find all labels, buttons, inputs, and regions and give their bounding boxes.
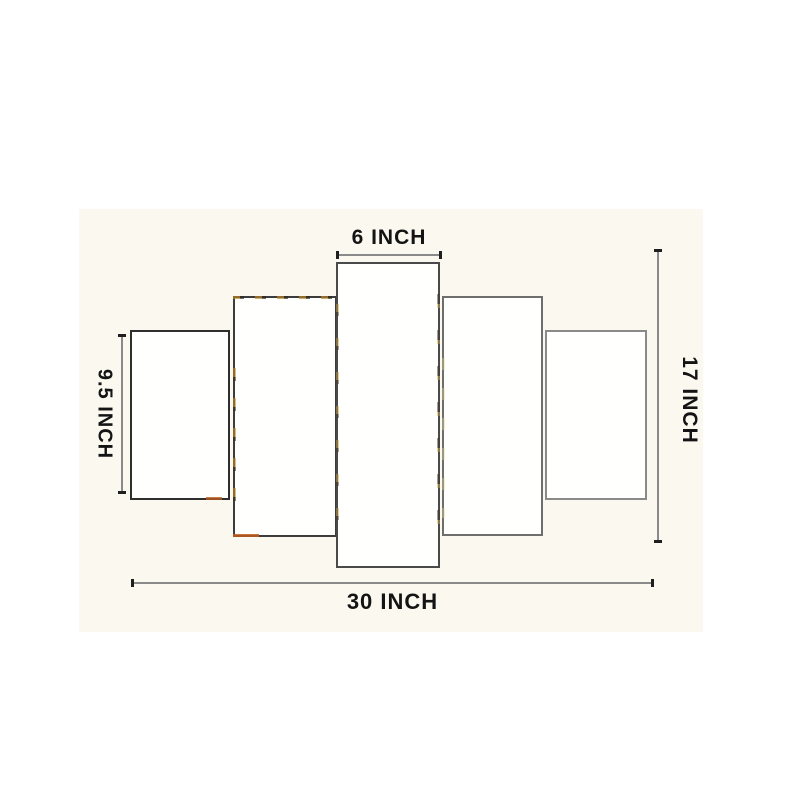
canvas-edge-speckle: [442, 358, 445, 518]
canvas-edge-speckle: [437, 294, 440, 534]
dimension-line-bottom-width: [132, 582, 653, 584]
canvas-edge-speckle: [233, 534, 259, 537]
canvas-edge-speckle: [233, 296, 337, 299]
dimension-line-left-height: [121, 335, 123, 493]
canvas-edge-speckle: [206, 497, 222, 500]
dimension-label-total-width: 30 INCH: [132, 589, 653, 615]
canvas-panel-2-left-inner: [233, 296, 337, 537]
canvas-panel-3-center: [336, 262, 440, 568]
dimension-line-top-width: [337, 254, 441, 256]
dimension-label-total-height: 17 INCH: [677, 356, 701, 444]
canvas-panel-1-left-outer: [130, 330, 230, 500]
canvas-panel-4-right-inner: [442, 296, 543, 536]
canvas-edge-speckle: [233, 368, 236, 518]
dimension-line-right-height: [657, 250, 659, 542]
dimension-label-outer-panel-height: 9.5 INCH: [93, 369, 116, 459]
dimension-label-center-panel-width: 6 INCH: [337, 226, 441, 250]
canvas-edge-speckle: [336, 304, 339, 524]
product-diagram: 6 INCH 9.5 INCH 17 INCH 30 INCH: [0, 0, 800, 800]
canvas-panel-5-right-outer: [545, 330, 647, 500]
